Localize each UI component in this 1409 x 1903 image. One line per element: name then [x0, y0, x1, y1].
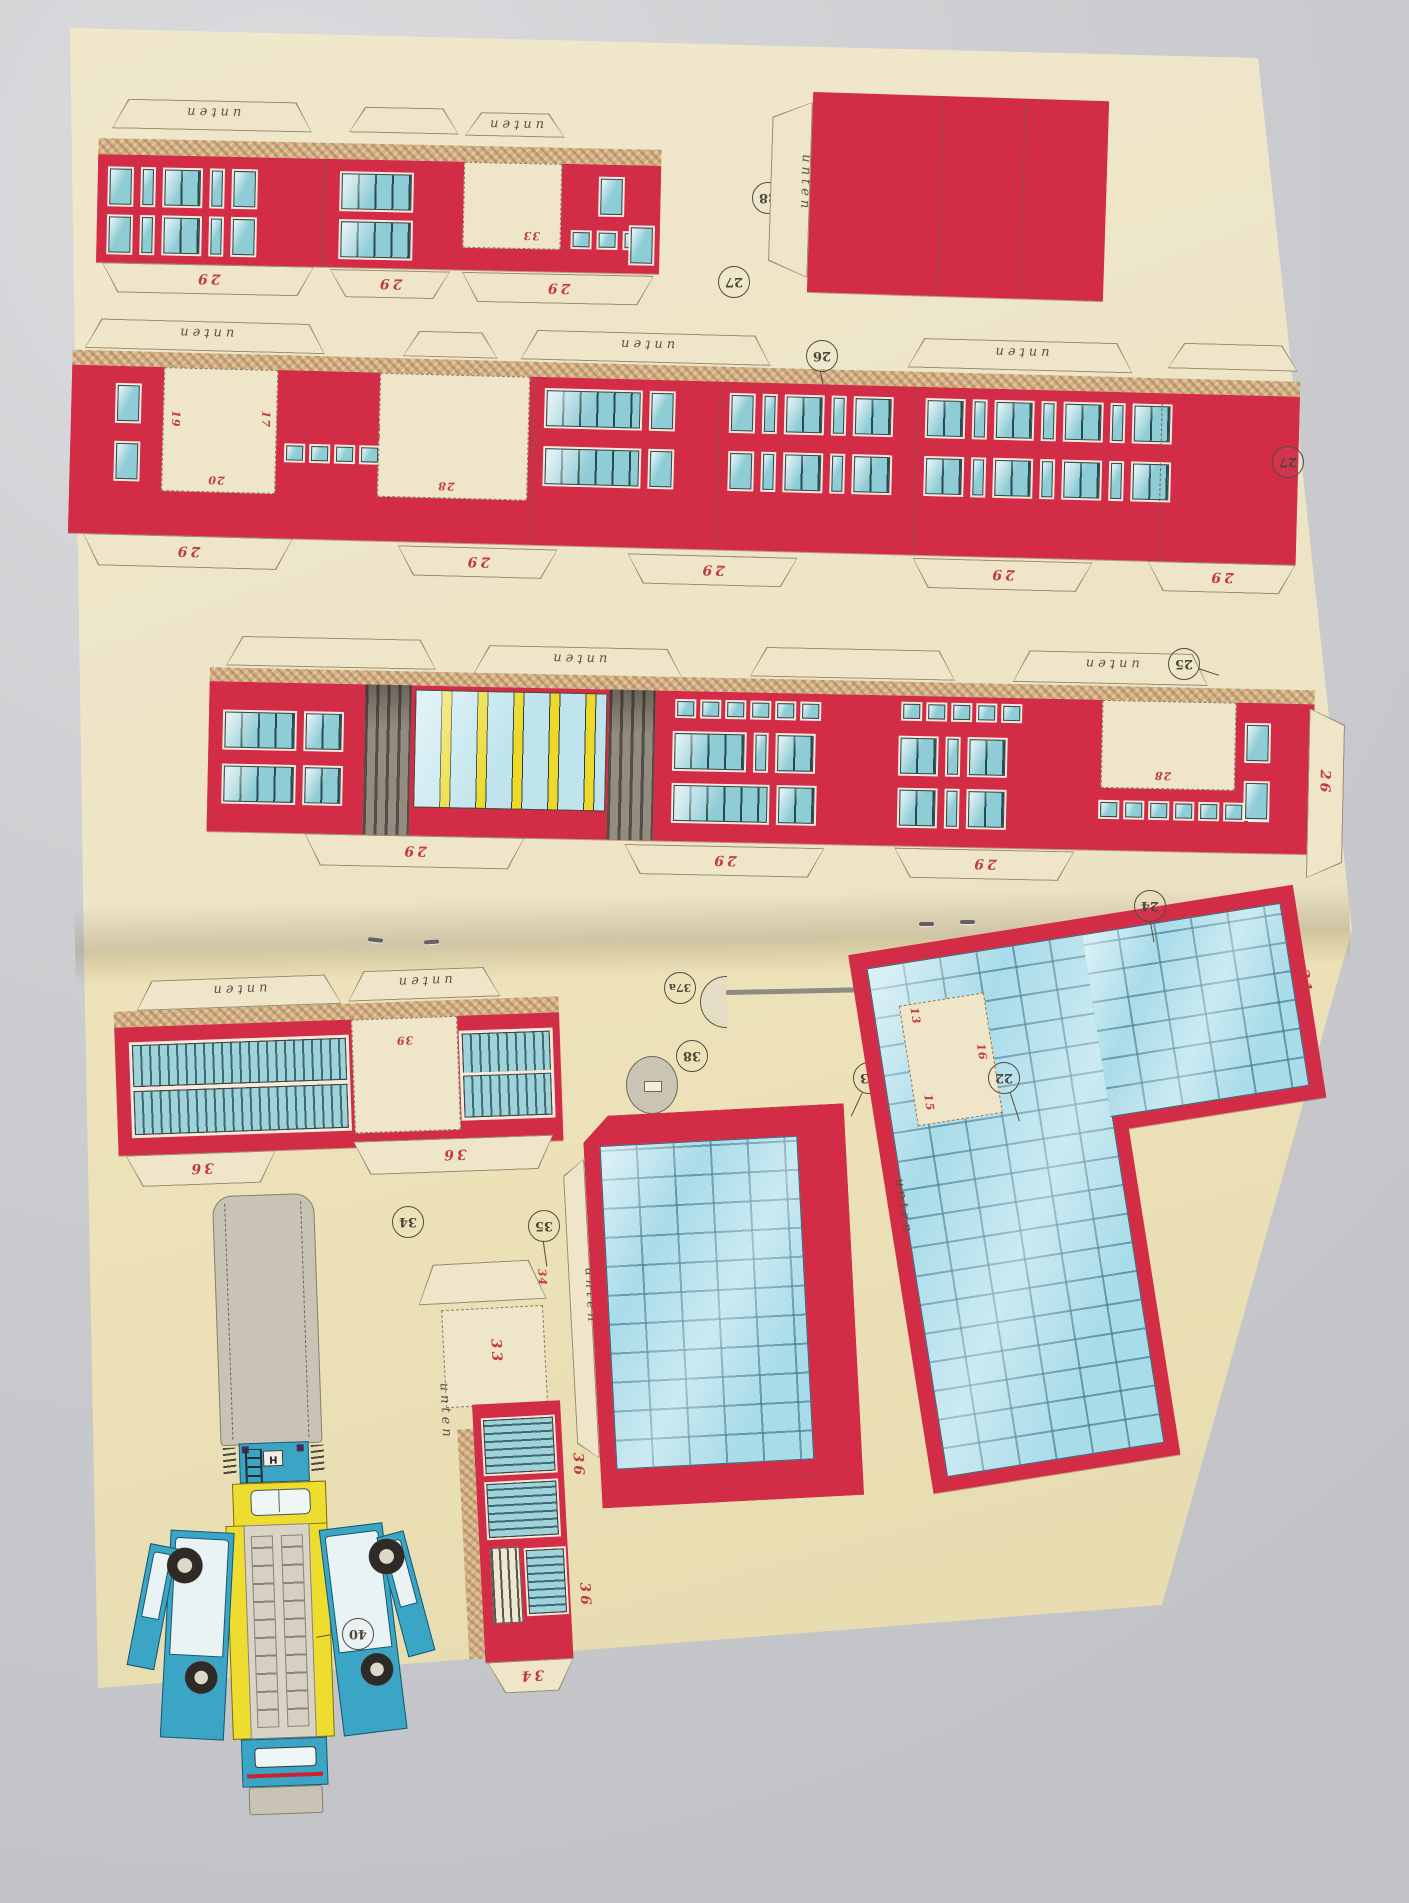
window	[311, 446, 328, 461]
window	[117, 385, 140, 422]
part-label-13: 13	[907, 1006, 923, 1025]
window	[232, 219, 255, 255]
window	[651, 393, 674, 430]
window	[974, 401, 986, 437]
part-label-19: 19	[169, 410, 182, 428]
glue-flap: 29	[912, 558, 1093, 593]
glue-flap: 29	[624, 844, 825, 878]
window-row	[600, 179, 623, 215]
window-row	[925, 458, 1169, 500]
window	[630, 227, 653, 263]
part-label-28: 28	[437, 479, 455, 492]
glue-flap: unten	[112, 98, 313, 132]
entrance-door-grille	[490, 1547, 524, 1624]
window	[546, 390, 641, 428]
circle-label-text: 27	[1279, 455, 1297, 470]
window	[729, 453, 752, 490]
window	[1112, 405, 1124, 441]
glue-flap: 36	[126, 1150, 277, 1187]
window	[764, 396, 776, 432]
glass-roof-slab-21-22: 13 16 15 unten 21	[834, 846, 1409, 1510]
glue-flap: 29	[304, 833, 525, 870]
circle-label-22: 22	[988, 1062, 1020, 1094]
glue-flap: 29	[82, 533, 293, 570]
window-row	[340, 221, 411, 258]
window	[108, 216, 131, 252]
window-row	[899, 790, 1005, 828]
window	[994, 460, 1031, 497]
glue-flap	[403, 330, 499, 358]
window	[1063, 462, 1100, 499]
window	[925, 458, 962, 495]
glue-flap: 29	[1147, 561, 1296, 595]
window	[778, 787, 815, 824]
glue-flap: unten	[347, 966, 500, 1001]
window-row	[1245, 783, 1268, 819]
bus-rear-stripe	[247, 1772, 323, 1779]
window	[802, 704, 819, 719]
window	[1125, 802, 1142, 817]
window	[702, 701, 719, 716]
window	[142, 169, 154, 205]
bus-route-sign: H	[263, 1450, 284, 1467]
photo-scene: unten unten 33 29 29 29 28 27 unten	[0, 0, 1409, 1903]
window	[598, 233, 615, 248]
window	[946, 791, 958, 827]
window-row	[900, 738, 1006, 776]
slat-window	[483, 1417, 556, 1475]
window-row	[109, 168, 256, 207]
window	[1065, 404, 1102, 441]
window-row	[673, 785, 815, 824]
red-roof-piece-28: unten	[771, 89, 1109, 307]
spring-zigzag	[311, 1445, 325, 1471]
flap-label-29: 29	[330, 274, 450, 293]
flap-label-26: 26	[1316, 770, 1333, 796]
window	[115, 443, 138, 480]
cutout-flap-33	[462, 162, 562, 250]
window	[996, 402, 1033, 439]
window	[164, 169, 201, 206]
part-label-17: 17	[259, 410, 272, 428]
part-label-33: 33	[487, 1338, 504, 1364]
slat-window-band	[462, 1031, 551, 1074]
bus-windshield	[250, 1488, 311, 1516]
window	[649, 451, 672, 488]
window	[833, 398, 845, 434]
glue-flap: 29	[329, 269, 450, 300]
glass-roof-slab-23: unten 21 24	[559, 1084, 881, 1524]
window	[755, 735, 767, 771]
window	[674, 733, 745, 770]
window	[224, 712, 295, 749]
bus-seats-right	[281, 1534, 310, 1727]
circle-label-text: 26	[813, 349, 831, 364]
circle-label-text: 24	[1141, 899, 1159, 914]
slat-window-band	[133, 1084, 348, 1135]
window	[900, 738, 937, 775]
window-row	[903, 704, 1021, 742]
window	[853, 456, 890, 493]
window	[731, 395, 754, 432]
glue-flap: 29	[461, 272, 654, 306]
bus-seats-left	[251, 1535, 280, 1728]
window	[786, 396, 823, 433]
window	[1003, 706, 1020, 721]
window	[1150, 803, 1167, 818]
yellow-frame-glass-doors	[413, 689, 607, 811]
part-label-15: 15	[921, 1093, 937, 1112]
part-label-36: 36	[576, 1582, 593, 1608]
glass-grid	[600, 1136, 815, 1470]
window	[211, 170, 223, 206]
window	[752, 703, 769, 718]
circle-label-35: 35	[528, 1210, 560, 1242]
circle-label-text: 40	[349, 1627, 367, 1642]
window-row	[117, 385, 140, 422]
glue-flap: 36	[353, 1135, 554, 1176]
window	[304, 767, 341, 804]
window	[1100, 802, 1117, 817]
window	[1225, 804, 1242, 819]
slat-window-band	[132, 1038, 347, 1087]
window-row	[544, 448, 672, 487]
window-row	[224, 712, 342, 750]
flap-label-34: 34	[535, 1268, 549, 1286]
window	[1132, 463, 1169, 500]
window-row	[731, 395, 892, 435]
entrance-grille	[363, 684, 412, 835]
window	[286, 445, 303, 460]
flap-label-unten: unten	[465, 116, 565, 133]
circle-label-40: 40	[342, 1618, 374, 1650]
part-label-16: 16	[974, 1042, 990, 1061]
bus-route-letter: H	[269, 1453, 278, 1464]
circle-label-26: 26	[806, 340, 838, 372]
glue-flap: 34	[488, 1658, 576, 1694]
window	[928, 704, 945, 719]
wall-strip-row2: unten unten unten 19 17 20 28 28 28	[67, 314, 1324, 612]
circle-label-38: 38	[676, 1040, 708, 1072]
window	[784, 454, 821, 491]
part-label-21: 21	[1295, 968, 1315, 996]
part-label-36: 36	[569, 1452, 586, 1478]
circle-label-text: 22	[995, 1071, 1013, 1086]
window	[600, 179, 623, 215]
part-label-28: 28	[1154, 769, 1172, 782]
base-slot	[644, 1081, 662, 1092]
window-row	[927, 400, 1171, 442]
part-label-28: 28	[369, 423, 382, 441]
window	[978, 705, 995, 720]
window	[141, 217, 153, 253]
circle-label-24: 24	[1134, 890, 1166, 922]
window-row	[729, 453, 890, 493]
window	[1110, 463, 1122, 499]
circle-label-25: 25	[1168, 648, 1200, 680]
window	[903, 704, 920, 719]
window-row	[546, 390, 674, 429]
window	[544, 448, 639, 486]
glass-grid	[1082, 903, 1309, 1117]
glue-flap	[750, 646, 956, 680]
flap-label-34: 34	[488, 1665, 575, 1685]
window	[762, 454, 774, 490]
circle-label-27: 27	[1272, 446, 1304, 478]
window	[777, 703, 794, 718]
window	[927, 400, 964, 437]
window	[210, 218, 222, 254]
window	[855, 398, 892, 435]
circle-label-text: 38	[683, 1049, 701, 1064]
glue-flap	[226, 636, 437, 670]
slat-window-band	[463, 1073, 552, 1118]
window	[305, 713, 342, 750]
glue-flap	[349, 106, 460, 134]
window	[1200, 804, 1217, 819]
glue-flap	[1168, 342, 1299, 371]
window	[361, 447, 378, 462]
window	[340, 221, 411, 258]
window	[677, 701, 694, 716]
part-label-21: 21	[821, 1271, 838, 1297]
window-row	[630, 227, 653, 263]
bus-lamp	[297, 1444, 304, 1451]
glue-flap: unten	[85, 318, 326, 354]
glue-flap: unten	[465, 112, 565, 138]
window	[163, 217, 200, 254]
window	[972, 459, 984, 495]
window	[777, 735, 814, 772]
circle-label-37a: 37a	[664, 972, 696, 1004]
entrance-grille	[606, 690, 655, 841]
circle-label-text: 35	[535, 1219, 553, 1234]
red-panel	[807, 92, 1109, 301]
circle-label-text: 25	[1175, 657, 1193, 672]
window	[1043, 403, 1055, 439]
glue-flap: 29	[894, 848, 1075, 882]
window-row	[341, 173, 412, 210]
window	[969, 739, 1006, 776]
window	[336, 447, 353, 462]
glue-flap: 29	[627, 553, 798, 587]
window-row	[223, 765, 341, 803]
wall-piece-row1-left: unten unten 33 29 29 29	[93, 98, 668, 342]
circle-label-27: 27	[718, 266, 750, 298]
circle-label-text: 37a	[669, 982, 691, 995]
window	[947, 739, 959, 775]
slat-window	[486, 1481, 559, 1539]
window	[831, 456, 843, 492]
flap-label-unten: unten	[436, 1382, 454, 1441]
glue-flap: unten	[521, 329, 772, 366]
window	[899, 790, 936, 827]
window-row	[1246, 725, 1269, 761]
part-label-20: 20	[207, 473, 225, 486]
glue-flap: unten	[908, 338, 1134, 374]
window	[341, 173, 412, 210]
window	[233, 171, 256, 207]
window	[1245, 783, 1268, 819]
window	[223, 765, 294, 802]
bus-rear-panel	[241, 1737, 329, 1788]
glue-flap	[417, 1259, 547, 1306]
bus-interior	[243, 1523, 316, 1739]
window	[109, 168, 132, 204]
window	[968, 791, 1005, 828]
window-row	[1100, 802, 1268, 841]
circle-label-text: 27	[725, 275, 743, 290]
slat-window	[526, 1548, 567, 1614]
glue-flap: 29	[101, 262, 314, 296]
part-label-39: 39	[396, 1033, 414, 1047]
window-row	[115, 443, 138, 480]
window-row	[108, 216, 255, 255]
spring-zigzag	[223, 1448, 237, 1474]
part-label-33: 33	[523, 229, 541, 242]
bus-bumper	[249, 1785, 324, 1816]
tower-piece-33: 34 33 unten 36 36 34	[380, 1247, 599, 1712]
window	[572, 232, 589, 247]
window	[1246, 725, 1269, 761]
window	[1134, 405, 1171, 442]
window-row	[674, 733, 814, 772]
part-label-24: 24	[797, 1469, 815, 1483]
window	[727, 702, 744, 717]
window-row	[285, 445, 378, 483]
window	[1041, 461, 1053, 497]
bus-rear-window	[254, 1746, 317, 1768]
window	[673, 785, 768, 823]
window	[953, 705, 970, 720]
window	[1175, 803, 1192, 818]
glue-flap: 29	[397, 545, 558, 579]
